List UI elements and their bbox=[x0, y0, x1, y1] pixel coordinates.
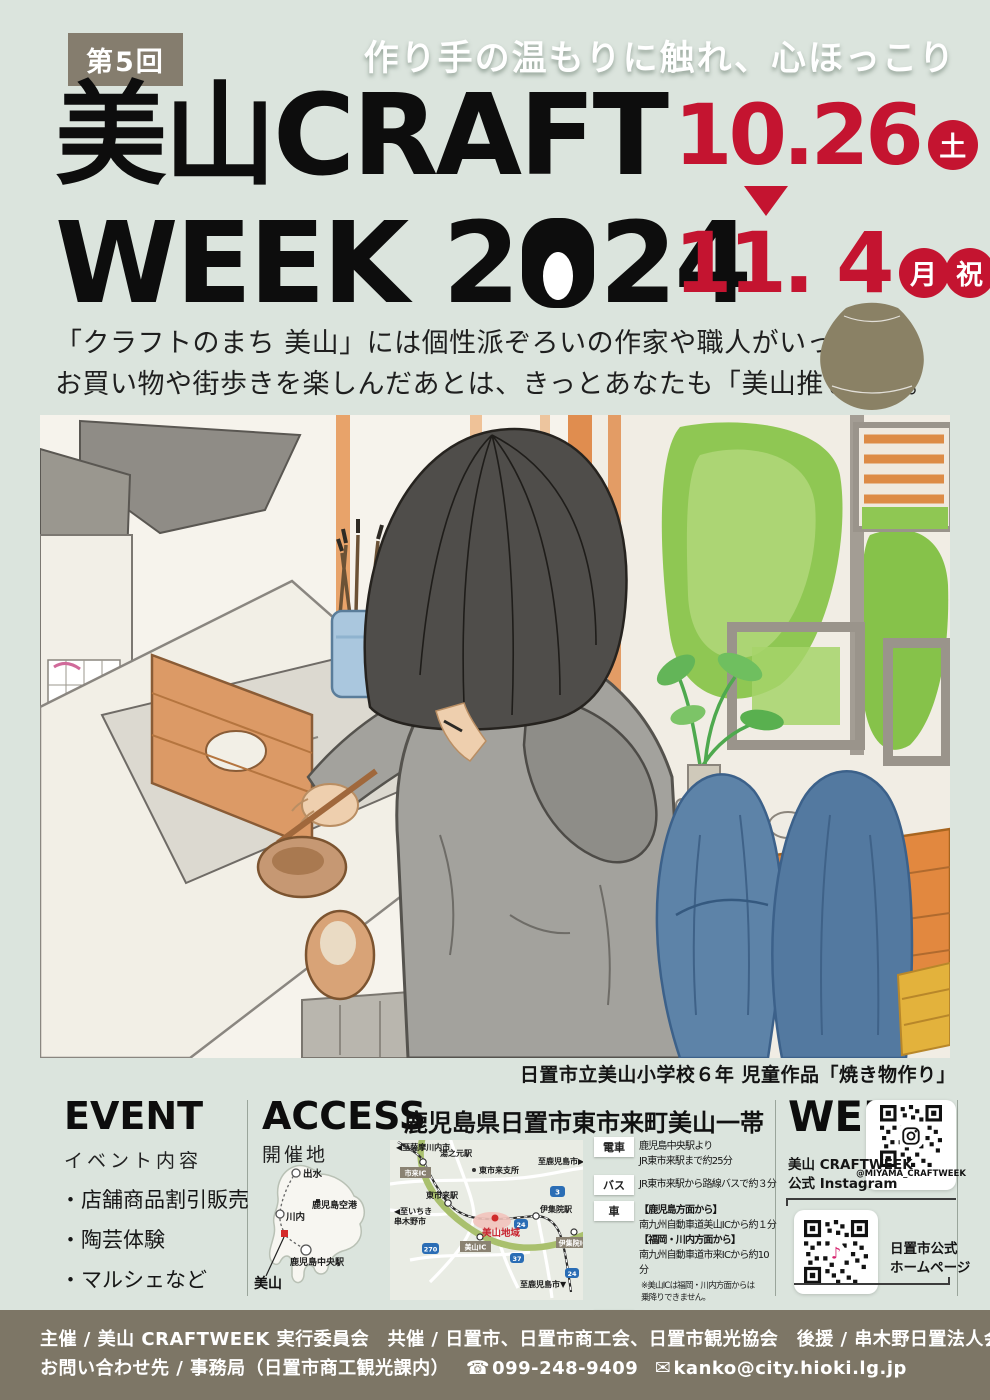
road-map-shield-270: 270 bbox=[424, 1246, 438, 1254]
road-map-badge-ijuin-ic: 伊集院IC bbox=[558, 1239, 583, 1248]
pot-zero-icon bbox=[522, 218, 594, 308]
event-title: EVENT bbox=[64, 1094, 203, 1138]
date-end-day-badge-2: 祝 bbox=[945, 248, 990, 298]
homepage-label-line-2: ホームページ bbox=[890, 1259, 970, 1278]
road-map-badge-ichiki-ic: 市来IC bbox=[405, 1169, 427, 1178]
date-end: 11. 4 bbox=[674, 224, 891, 304]
date-end-day-badge-1: 月 bbox=[899, 248, 949, 298]
date-block: 10.26 土 11. 4 月 祝 bbox=[674, 96, 986, 304]
date-arrow-icon bbox=[744, 186, 788, 216]
homepage-label-line-1: 日置市公式 bbox=[890, 1240, 970, 1259]
car-note-1: ※美山ICは福岡・川内方面からは bbox=[641, 1280, 778, 1292]
road-map-shield-3: 3 bbox=[555, 1189, 560, 1197]
road-map-label-to-ichikikushikino-1: ◀至いちき bbox=[394, 1207, 432, 1216]
pref-map-label-miyama: 美山 bbox=[254, 1275, 282, 1292]
pref-map-label-izumi: 出水 bbox=[303, 1168, 323, 1180]
lead-line-1: 「クラフトのまち 美山」には個性派ぞろいの作家や職人がいっぱい。 bbox=[55, 323, 934, 364]
instagram-label-line-2: 公式 Instagram bbox=[788, 1175, 913, 1194]
children-artwork-illustration bbox=[40, 415, 950, 1058]
access-title: ACCESS bbox=[262, 1094, 426, 1138]
transport-row-bus: バス JR東市来駅から路線バスで約３分 bbox=[594, 1175, 778, 1195]
footer: 主催 / 美山 CRAFTWEEK 実行委員会 共催 / 日置市、日置市商工会、… bbox=[0, 1310, 990, 1400]
event-item: ・マルシェなど bbox=[60, 1260, 249, 1300]
event-item: ・陶芸体験 bbox=[60, 1220, 249, 1260]
qr-pattern-icon: ♪ bbox=[804, 1220, 868, 1284]
date-start-row: 10.26 土 bbox=[674, 96, 986, 176]
car-heading-1: 【鹿児島方面から】 bbox=[639, 1203, 778, 1218]
train-line-2: JR東市来駅まで約25分 bbox=[639, 1154, 732, 1169]
title-line-2-pre: WEEK 2 bbox=[55, 199, 517, 329]
bus-line-1: JR東市来駅から路線バスで約３分 bbox=[639, 1177, 776, 1192]
car-line-1: 南九州自動車道美山ICから約１分 bbox=[639, 1218, 778, 1233]
footer-phone: 099-248-9409 bbox=[492, 1358, 638, 1379]
train-badge: 電車 bbox=[594, 1137, 634, 1157]
instagram-label-line-1: 美山 CRAFTWEEK bbox=[788, 1156, 913, 1175]
date-start-day-badge: 土 bbox=[928, 120, 978, 170]
poster: 第5回 作り手の温もりに触れ、心ほっこり 美山CRAFT WEEK 224 10… bbox=[0, 0, 990, 1400]
mail-icon: ✉ bbox=[655, 1357, 671, 1379]
instagram-label: 美山 CRAFTWEEK 公式 Instagram bbox=[788, 1156, 913, 1194]
road-map-shield-37: 37 bbox=[512, 1255, 521, 1263]
footer-contact-label: お問い合わせ先 / 事務局（日置市商工観光課内） bbox=[40, 1358, 449, 1379]
transport-info: 電車 鹿児島中央駅より JR東市来駅まで約25分 バス JR東市来駅から路線バス… bbox=[594, 1137, 778, 1336]
homepage-label: 日置市公式 ホームページ bbox=[890, 1240, 970, 1278]
road-map-shield-24b: 24 bbox=[567, 1270, 577, 1278]
title-line-1: 美山CRAFT bbox=[55, 80, 666, 192]
transport-row-train: 電車 鹿児島中央駅より JR東市来駅まで約25分 bbox=[594, 1137, 778, 1169]
road-map-label-ijuin-st: 伊集院駅 bbox=[539, 1204, 573, 1214]
road-map-label-shisho: 東市来支所 bbox=[479, 1165, 519, 1175]
pot-silhouette-icon bbox=[806, 300, 938, 414]
prefecture-map: 出水 川内 鹿児島空港 鹿児島中央駅 美山 bbox=[252, 1162, 387, 1304]
web-underline-2 bbox=[794, 1277, 950, 1285]
footer-contact: お問い合わせ先 / 事務局（日置市商工観光課内） ☎099-248-9409 ✉… bbox=[40, 1354, 990, 1383]
road-map-label-higashiichiki-st: 東市来駅 bbox=[426, 1190, 459, 1200]
date-start: 10.26 bbox=[674, 96, 920, 176]
footer-email: kanko@city.hioki.lg.jp bbox=[673, 1358, 906, 1379]
event-subtitle: イベント内容 bbox=[64, 1146, 202, 1173]
lead-line-2: お買い物や街歩きを楽しんだあとは、きっとあなたも「美山推し」に。 bbox=[55, 364, 934, 405]
lead-text: 「クラフトのまち 美山」には個性派ぞろいの作家や職人がいっぱい。 お買い物や街歩… bbox=[55, 323, 934, 405]
pref-map-label-sendai: 川内 bbox=[285, 1211, 305, 1223]
road-map-label-to-kagoshima-right: 至鹿児島市▶ bbox=[538, 1156, 583, 1166]
car-line-2: 南九州自動車道市来ICから約10分 bbox=[639, 1248, 778, 1278]
date-end-row: 11. 4 月 祝 bbox=[674, 224, 986, 304]
phone-icon: ☎ bbox=[466, 1357, 490, 1379]
pref-map-label-chuo-st: 鹿児島中央駅 bbox=[289, 1256, 345, 1268]
pref-map-label-airport: 鹿児島空港 bbox=[311, 1199, 358, 1211]
road-map-badge-miyama-ic: 美山IC bbox=[465, 1243, 487, 1252]
music-note-icon: ♪ bbox=[831, 1243, 841, 1262]
road-map-label-to-kagoshima-down: 至鹿児島市▼ bbox=[520, 1279, 567, 1289]
road-map: 市来IC 美山IC 伊集院IC 3 24 270 37 24 ◀至薩摩川内市 湯… bbox=[390, 1140, 583, 1300]
road-map-label-yunomoto: 湯之元駅 bbox=[440, 1148, 473, 1158]
train-line-1: 鹿児島中央駅より bbox=[639, 1139, 732, 1154]
web-underline-1 bbox=[786, 1198, 956, 1206]
car-badge: 車 bbox=[594, 1201, 634, 1221]
event-items: ・店舗商品割引販売 ・陶芸体験 ・マルシェなど bbox=[60, 1180, 249, 1300]
access-area: 鹿児島県日置市東市来町美山一帯 bbox=[404, 1103, 764, 1138]
footer-organizers: 主催 / 美山 CRAFTWEEK 実行委員会 共催 / 日置市、日置市商工会、… bbox=[40, 1325, 990, 1354]
title-line-2: WEEK 224 bbox=[55, 208, 749, 320]
road-map-label-to-ichikikushikino-2: 串木野市 bbox=[394, 1216, 426, 1226]
road-map-label-miyama-area: 美山地域 bbox=[481, 1227, 521, 1239]
event-item: ・店舗商品割引販売 bbox=[60, 1180, 249, 1220]
artwork-caption: 日置市立美山小学校６年 児童作品「焼き物作り」 bbox=[520, 1060, 956, 1087]
car-heading-2: 【福岡・川内方面から】 bbox=[639, 1233, 778, 1248]
transport-row-car: 車 【鹿児島方面から】 南九州自動車道美山ICから約１分 【福岡・川内方面から】… bbox=[594, 1201, 778, 1304]
bus-badge: バス bbox=[594, 1175, 634, 1195]
car-note-2: 乗降りできません。 bbox=[641, 1292, 778, 1304]
